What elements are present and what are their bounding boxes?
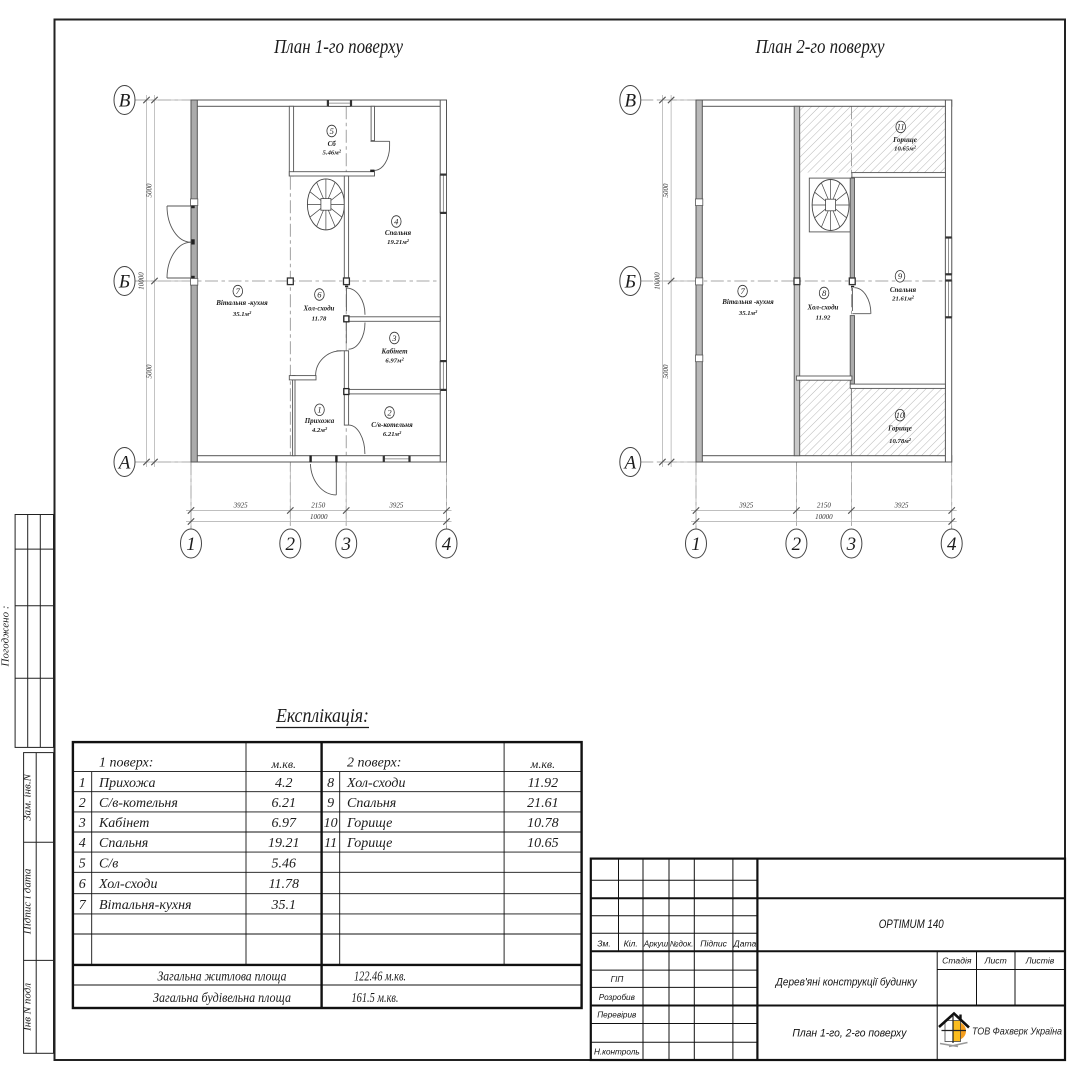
svg-text:3925: 3925 — [738, 502, 754, 510]
svg-text:4: 4 — [79, 836, 86, 851]
svg-text:План 1-го, 2-го поверху: План 1-го, 2-го поверху — [792, 1028, 907, 1040]
svg-text:6.21: 6.21 — [272, 796, 297, 811]
svg-text:План 2-го поверху: План 2-го поверху — [755, 36, 886, 58]
svg-text:Дата: Дата — [733, 939, 757, 949]
svg-text:10.78м²: 10.78м² — [889, 438, 912, 445]
svg-text:1: 1 — [79, 776, 86, 791]
svg-text:11.78: 11.78 — [269, 877, 299, 892]
svg-text:6: 6 — [317, 289, 322, 299]
svg-text:3925: 3925 — [233, 502, 249, 510]
svg-text:Вітальня-кухня: Вітальня-кухня — [99, 898, 192, 913]
svg-text:7: 7 — [740, 286, 745, 296]
svg-text:10.65м²: 10.65м² — [894, 146, 917, 153]
svg-text:Експлікація:: Експлікація: — [275, 705, 369, 727]
svg-text:21.61: 21.61 — [527, 796, 559, 811]
svg-text:19.21м²: 19.21м² — [387, 239, 410, 246]
svg-text:10: 10 — [324, 816, 338, 831]
svg-text:Кабінет: Кабінет — [380, 347, 408, 355]
svg-text:1: 1 — [317, 405, 321, 415]
svg-text:Загальна житлова площа: Загальна житлова площа — [158, 969, 287, 984]
svg-text:Загальна будівельна площа: Загальна будівельна площа — [153, 991, 291, 1006]
svg-text:Спальня: Спальня — [890, 286, 917, 294]
svg-text:6.21м²: 6.21м² — [383, 431, 402, 438]
svg-text:Кіл.: Кіл. — [624, 939, 638, 949]
svg-text:7: 7 — [79, 898, 87, 913]
svg-text:Горище: Горище — [346, 836, 392, 851]
svg-text:4: 4 — [394, 216, 399, 226]
svg-text:4: 4 — [947, 534, 957, 555]
svg-text:10000: 10000 — [310, 513, 328, 521]
svg-text:Інв N подл: Інв N подл — [22, 983, 34, 1032]
svg-text:11.92: 11.92 — [816, 315, 831, 322]
svg-text:Прихожа: Прихожа — [98, 776, 155, 791]
svg-text:1 поверх:: 1 поверх: — [99, 756, 153, 771]
svg-text:6.97м²: 6.97м² — [385, 357, 404, 364]
svg-text:4.2: 4.2 — [275, 776, 293, 791]
svg-text:Перевірив: Перевірив — [597, 1011, 637, 1020]
svg-text:2: 2 — [79, 796, 86, 811]
svg-text:Зам. інв.N: Зам. інв.N — [22, 773, 34, 821]
svg-text:5: 5 — [330, 126, 334, 136]
svg-text:3925: 3925 — [388, 502, 404, 510]
svg-text:5.46: 5.46 — [272, 856, 297, 871]
svg-text:Хол-сходи: Хол-сходи — [807, 304, 839, 312]
svg-text:3: 3 — [391, 333, 396, 343]
svg-text:6.97: 6.97 — [272, 816, 298, 831]
svg-text:4: 4 — [442, 534, 452, 555]
svg-text:Спальня: Спальня — [99, 836, 148, 851]
svg-text:А: А — [117, 453, 131, 474]
svg-text:Горище: Горище — [887, 425, 912, 433]
svg-text:10000: 10000 — [653, 272, 661, 290]
svg-text:5000: 5000 — [662, 364, 670, 379]
svg-text:План 1-го поверху: План 1-го поверху — [273, 36, 404, 58]
svg-text:2150: 2150 — [311, 502, 326, 510]
svg-text:Підпис: Підпис — [700, 939, 727, 949]
svg-text:В: В — [119, 91, 131, 112]
svg-text:10.65: 10.65 — [527, 836, 559, 851]
svg-text:2 поверх:: 2 поверх: — [347, 756, 401, 771]
svg-text:10000: 10000 — [138, 272, 146, 290]
svg-text:Спальня: Спальня — [347, 796, 396, 811]
svg-text:OPTIMUM 140: OPTIMUM 140 — [879, 919, 945, 931]
svg-text:Стадія: Стадія — [942, 956, 972, 966]
svg-text:Б: Б — [624, 272, 636, 293]
svg-text:Лист: Лист — [984, 956, 1007, 966]
svg-text:Хол-сходи: Хол-сходи — [98, 877, 157, 892]
svg-text:Зм.: Зм. — [597, 939, 611, 949]
svg-text:10: 10 — [896, 410, 905, 420]
svg-text:10.78: 10.78 — [527, 816, 559, 831]
svg-text:35.1м²: 35.1м² — [738, 310, 758, 317]
svg-text:1: 1 — [691, 534, 701, 555]
svg-text:Сб: Сб — [328, 140, 337, 148]
svg-text:Листів: Листів — [1025, 956, 1055, 966]
svg-text:С/в: С/в — [99, 856, 118, 871]
svg-text:С/в-котельня: С/в-котельня — [371, 421, 413, 429]
svg-text:3: 3 — [340, 534, 351, 555]
svg-text:19.21: 19.21 — [268, 836, 300, 851]
svg-text:5: 5 — [79, 856, 86, 871]
svg-text:8: 8 — [822, 288, 827, 298]
svg-text:6: 6 — [79, 877, 86, 892]
svg-text:5000: 5000 — [146, 364, 154, 379]
svg-text:Прихожа: Прихожа — [304, 417, 335, 425]
svg-text:11: 11 — [897, 122, 905, 132]
svg-text:11.92: 11.92 — [528, 776, 558, 791]
svg-text:2150: 2150 — [817, 502, 832, 510]
svg-text:Спальня: Спальня — [385, 229, 412, 237]
svg-text:2: 2 — [792, 534, 802, 555]
svg-text:5.46м²: 5.46м² — [323, 150, 342, 157]
svg-text:Хол-сходи: Хол-сходи — [303, 305, 335, 313]
svg-text:9: 9 — [327, 796, 334, 811]
svg-text:№док.: №док. — [670, 940, 694, 949]
svg-text:5000: 5000 — [662, 183, 670, 198]
svg-text:Розробив: Розробив — [599, 993, 636, 1002]
svg-text:м.кв.: м.кв. — [530, 757, 555, 771]
svg-text:Б: Б — [118, 272, 130, 293]
svg-text:Дерев'яні конструкції будинку: Дерев'яні конструкції будинку — [774, 977, 918, 989]
svg-text:8: 8 — [327, 776, 334, 791]
svg-text:7: 7 — [236, 286, 241, 296]
svg-text:122.46 м.кв.: 122.46 м.кв. — [354, 969, 406, 984]
svg-text:Кабінет: Кабінет — [98, 816, 149, 831]
svg-text:Н.контроль: Н.контроль — [594, 1048, 640, 1057]
svg-text:Вітальня -кухня: Вітальня -кухня — [215, 299, 268, 307]
svg-text:Горище: Горище — [892, 136, 917, 144]
svg-text:3: 3 — [78, 816, 86, 831]
svg-text:11.78: 11.78 — [312, 315, 327, 322]
svg-text:С/в-котельня: С/в-котельня — [99, 796, 178, 811]
svg-text:2: 2 — [286, 534, 296, 555]
svg-text:В: В — [624, 91, 636, 112]
svg-text:Погоджено :: Погоджено : — [0, 606, 12, 668]
svg-text:ТОВ Фахверк Україна: ТОВ Фахверк Україна — [972, 1027, 1062, 1038]
svg-text:3: 3 — [846, 534, 857, 555]
svg-text:Вітальня -кухня: Вітальня -кухня — [721, 298, 774, 306]
svg-text:ГІП: ГІП — [611, 975, 624, 984]
svg-text:161.5 м.кв.: 161.5 м.кв. — [352, 991, 399, 1006]
svg-text:35.1м²: 35.1м² — [232, 311, 252, 318]
svg-text:Горище: Горище — [346, 816, 392, 831]
svg-text:А: А — [622, 453, 636, 474]
svg-text:5000: 5000 — [146, 183, 154, 198]
svg-text:4.2м²: 4.2м² — [311, 427, 328, 434]
svg-text:10000: 10000 — [815, 513, 833, 521]
svg-text:21.61м²: 21.61м² — [891, 296, 915, 303]
svg-text:м.кв.: м.кв. — [271, 757, 296, 771]
svg-text:35.1: 35.1 — [271, 898, 297, 913]
svg-text:Підпис і дата: Підпис і дата — [22, 868, 34, 935]
svg-text:3925: 3925 — [894, 502, 910, 510]
svg-text:1: 1 — [186, 534, 196, 555]
svg-text:Аркуш: Аркуш — [643, 940, 669, 949]
svg-text:11: 11 — [324, 836, 337, 851]
svg-text:Хол-сходи: Хол-сходи — [346, 776, 405, 791]
